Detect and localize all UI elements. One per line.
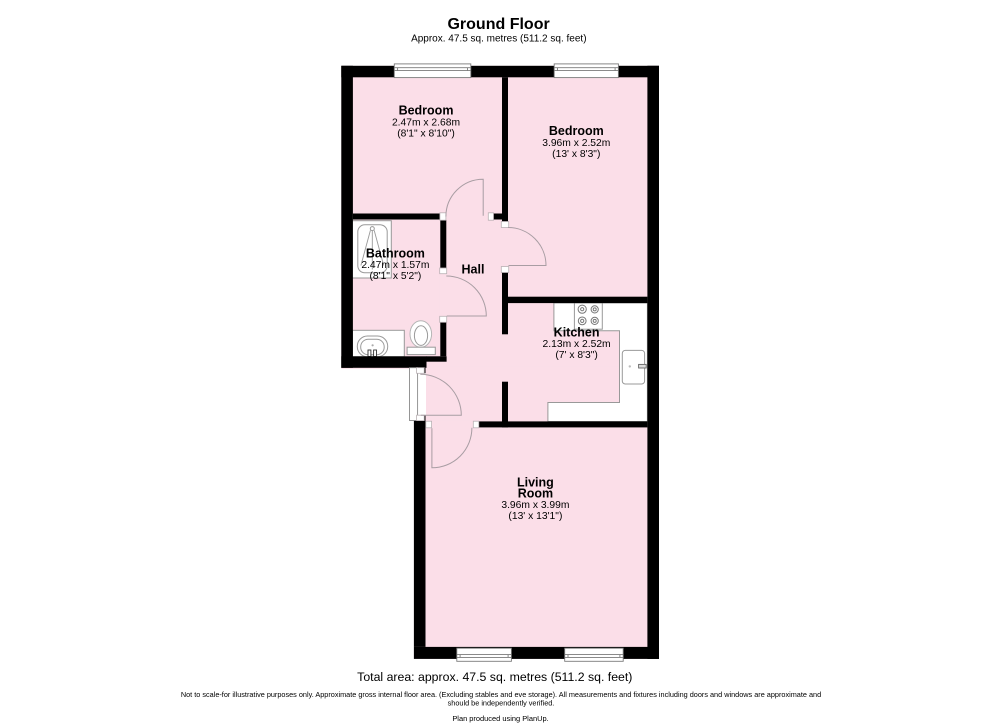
svg-text:3.96m x 3.99m: 3.96m x 3.99m	[501, 500, 569, 511]
svg-text:Bedroom: Bedroom	[399, 104, 454, 118]
svg-text:Bedroom: Bedroom	[549, 124, 604, 138]
svg-text:Bathroom: Bathroom	[366, 246, 425, 260]
svg-text:2.47m x 1.57m: 2.47m x 1.57m	[361, 260, 429, 271]
svg-text:(13' x 8'3"): (13' x 8'3")	[552, 149, 600, 160]
svg-text:Ground Floor: Ground Floor	[447, 16, 549, 33]
svg-text:Room: Room	[518, 486, 553, 500]
svg-text:(8'1" x 8'10"): (8'1" x 8'10")	[397, 128, 455, 139]
svg-text:Hall: Hall	[462, 263, 485, 277]
svg-text:should be independently verifi: should be independently verified.	[448, 699, 555, 708]
svg-text:Plan produced using PlanUp.: Plan produced using PlanUp.	[452, 714, 548, 723]
svg-text:2.13m x 2.52m: 2.13m x 2.52m	[543, 339, 611, 350]
svg-text:Kitchen: Kitchen	[554, 325, 600, 339]
svg-text:3.96m x 2.52m: 3.96m x 2.52m	[542, 138, 610, 149]
svg-text:(7' x 8'3"): (7' x 8'3")	[555, 350, 598, 361]
svg-text:2.47m x 2.68m: 2.47m x 2.68m	[392, 118, 460, 129]
svg-text:Total area: approx. 47.5 sq. m: Total area: approx. 47.5 sq. metres (511…	[357, 670, 632, 684]
svg-text:(8'1" x 5'2"): (8'1" x 5'2")	[369, 271, 421, 282]
svg-text:Approx. 47.5 sq. metres (511.2: Approx. 47.5 sq. metres (511.2 sq. feet)	[411, 34, 586, 45]
svg-text:(13' x 13'1"): (13' x 13'1")	[508, 511, 562, 522]
